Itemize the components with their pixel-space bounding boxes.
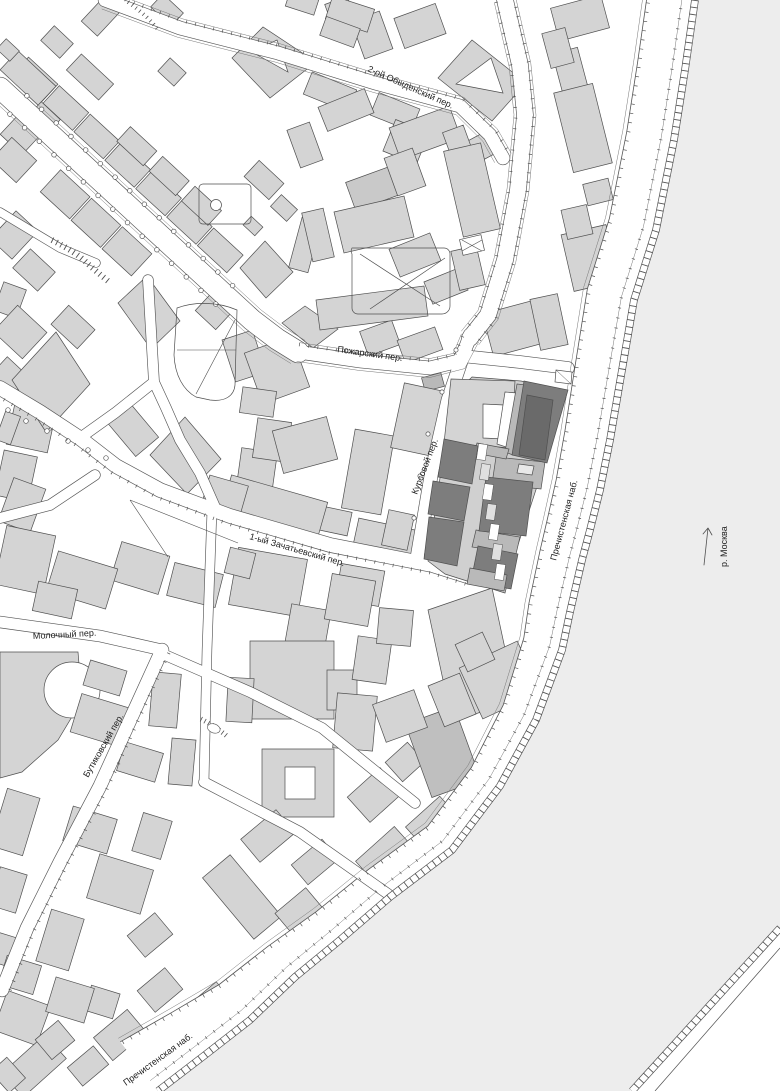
svg-text:р. Москва: р. Москва [719, 526, 729, 567]
